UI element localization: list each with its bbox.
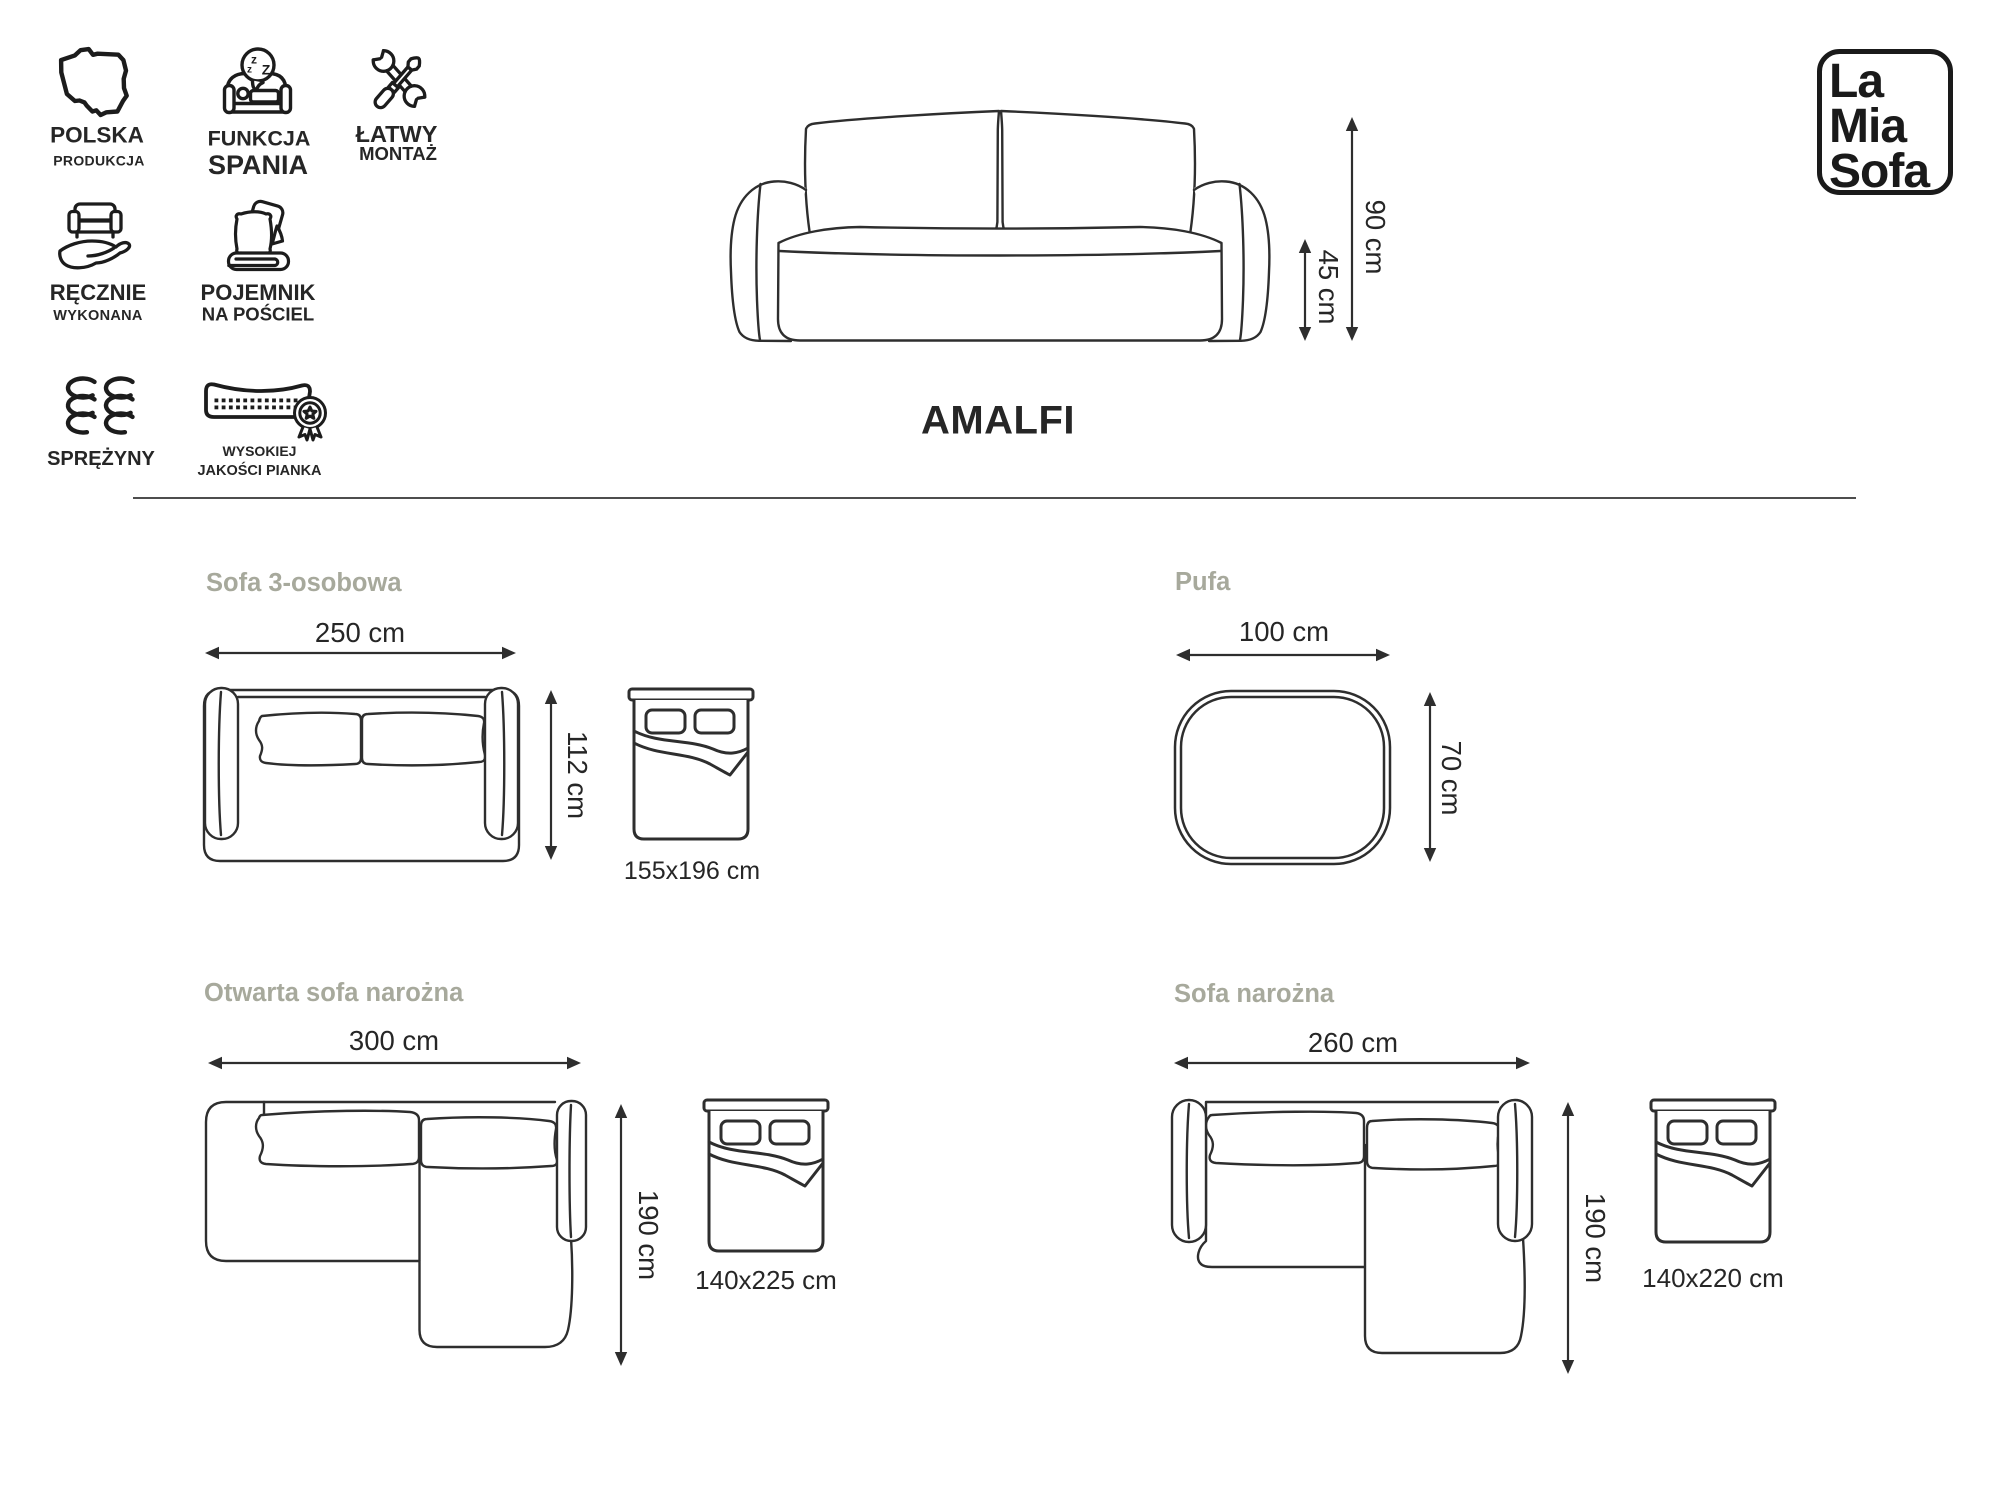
svg-text:70 cm: 70 cm [1436, 741, 1467, 816]
svg-text:140x225 cm: 140x225 cm [695, 1265, 837, 1295]
svg-text:SPRĘŻYNY: SPRĘŻYNY [47, 447, 155, 470]
svg-text:190 cm: 190 cm [633, 1190, 664, 1280]
svg-text:WYSOKIEJ: WYSOKIEJ [223, 443, 297, 459]
svg-text:JAKOŚCI PIANKA: JAKOŚCI PIANKA [197, 461, 322, 479]
svg-text:155x196 cm: 155x196 cm [624, 857, 760, 885]
svg-text:RĘCZNIE: RĘCZNIE [50, 280, 147, 305]
svg-text:FUNKCJA: FUNKCJA [208, 127, 311, 151]
svg-text:100 cm: 100 cm [1239, 616, 1329, 647]
svg-text:112 cm: 112 cm [562, 731, 593, 819]
svg-text:260 cm: 260 cm [1308, 1027, 1398, 1058]
svg-text:Z: Z [262, 62, 271, 78]
svg-text:NA POŚCIEL: NA POŚCIEL [202, 304, 314, 325]
svg-text:SPANIA: SPANIA [208, 150, 308, 180]
svg-text:WYKONANA: WYKONANA [53, 308, 143, 324]
svg-text:POJEMNIK: POJEMNIK [201, 280, 316, 305]
svg-text:PRODUKCJA: PRODUKCJA [53, 153, 144, 169]
svg-text:300 cm: 300 cm [349, 1025, 439, 1056]
svg-text:Sofa 3-osobowa: Sofa 3-osobowa [206, 569, 402, 597]
svg-text:Pufa: Pufa [1175, 568, 1231, 596]
svg-text:AMALFI: AMALFI [921, 399, 1075, 443]
svg-text:z: z [247, 65, 252, 76]
svg-text:POLSKA: POLSKA [50, 123, 144, 148]
svg-text:MONTAŻ: MONTAŻ [359, 143, 437, 164]
svg-text:190 cm: 190 cm [1580, 1193, 1611, 1283]
svg-text:45 cm: 45 cm [1313, 250, 1344, 325]
svg-text:90 cm: 90 cm [1360, 200, 1391, 275]
svg-text:Sofa: Sofa [1829, 145, 1930, 198]
svg-text:140x220 cm: 140x220 cm [1642, 1263, 1784, 1293]
svg-text:Sofa narożna: Sofa narożna [1174, 980, 1335, 1008]
svg-text:Otwarta sofa narożna: Otwarta sofa narożna [204, 979, 464, 1007]
svg-text:250 cm: 250 cm [315, 617, 405, 648]
